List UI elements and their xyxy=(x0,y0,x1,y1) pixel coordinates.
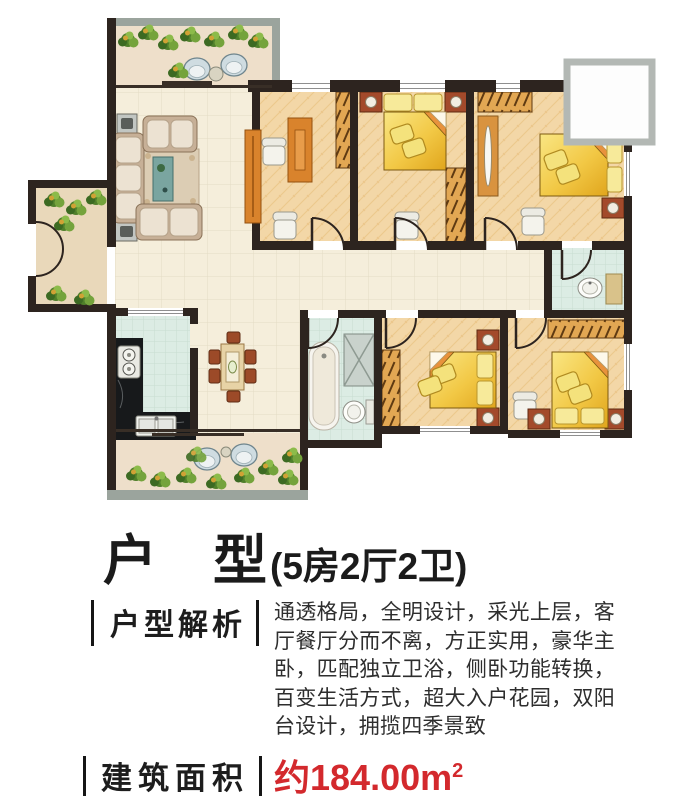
floor-plan xyxy=(0,0,676,515)
wardrobe xyxy=(382,350,400,428)
pillow xyxy=(384,94,412,111)
table-plant xyxy=(157,164,165,172)
pillow xyxy=(477,354,493,378)
end-table-decor xyxy=(120,226,133,237)
toilet-tank xyxy=(366,400,374,424)
nightstand xyxy=(602,198,624,218)
analysis-body: 通透格局，全明设计，采光上层，客厅餐厅分而不离，方正实用，豪华主卧，匹配独立卫浴… xyxy=(274,599,615,742)
dining-chair xyxy=(209,350,220,364)
nightstand xyxy=(477,330,499,350)
window xyxy=(420,426,470,434)
divider-bar xyxy=(259,756,262,796)
dining-chair xyxy=(227,391,240,402)
coffee-table xyxy=(153,157,173,201)
balcony-chair xyxy=(221,54,247,76)
window xyxy=(560,430,600,438)
window xyxy=(292,80,330,92)
dining-chair xyxy=(245,350,256,364)
balcony-table xyxy=(209,67,223,81)
area-label: 建筑面积 xyxy=(101,753,249,798)
balcony-chair xyxy=(184,58,210,80)
nightstand xyxy=(360,92,382,112)
window xyxy=(128,308,183,316)
analysis-section: 户型解析 通透格局，全明设计，采光上层，客厅餐厅分而不离，方正实用，豪华主卧，匹… xyxy=(91,597,615,742)
wardrobe xyxy=(478,92,532,112)
pillow xyxy=(607,167,622,192)
chair xyxy=(273,212,297,239)
balcony-frame xyxy=(107,490,308,500)
pillow xyxy=(581,408,604,424)
bay-window xyxy=(567,62,652,142)
balcony-frame xyxy=(272,18,280,84)
corridor-floor xyxy=(252,250,544,310)
divider-bar xyxy=(256,600,259,646)
title-detail: (5房2厅2卫) xyxy=(270,536,467,590)
window xyxy=(624,152,632,196)
analysis-label: 户型解析 xyxy=(110,600,246,644)
mirror xyxy=(485,126,492,186)
end-table-decor xyxy=(121,118,133,129)
dining-chair xyxy=(209,369,220,383)
nightstand xyxy=(445,92,467,112)
dining-chair xyxy=(245,369,256,383)
living-room xyxy=(113,114,202,241)
divider-bar xyxy=(91,600,94,646)
window xyxy=(496,80,520,92)
flyer-page: 户 型(5房2厅2卫) 户型解析 通透格局，全明设计，采光上层，客厅餐厅分而不离… xyxy=(0,0,676,800)
title-main: 户 型 xyxy=(103,516,268,595)
vanity xyxy=(606,274,622,304)
chair xyxy=(521,208,545,235)
bathtub-inner xyxy=(313,347,335,425)
window xyxy=(400,80,445,92)
page-title: 户 型(5房2厅2卫) xyxy=(103,516,467,595)
balcony-frame xyxy=(116,18,280,26)
pillow xyxy=(414,94,442,111)
area-superscript: 2 xyxy=(452,760,463,782)
balcony-table xyxy=(221,447,231,457)
pillow xyxy=(555,408,578,424)
nightstand xyxy=(528,409,550,429)
divider-bar xyxy=(83,756,86,796)
desk-chair xyxy=(262,138,286,165)
area-value: 约184.00m2 xyxy=(274,749,463,800)
sliding-door xyxy=(116,429,300,432)
window xyxy=(624,344,632,390)
area-section: 建筑面积 约184.00m2 xyxy=(83,749,463,800)
wardrobe xyxy=(548,320,626,338)
pillow xyxy=(477,381,493,405)
sliding-door xyxy=(116,85,272,88)
balcony-chair xyxy=(231,444,257,466)
table-vase xyxy=(229,361,237,373)
wardrobe xyxy=(446,168,466,243)
nightstand xyxy=(477,408,499,428)
dining-chair xyxy=(227,332,240,343)
